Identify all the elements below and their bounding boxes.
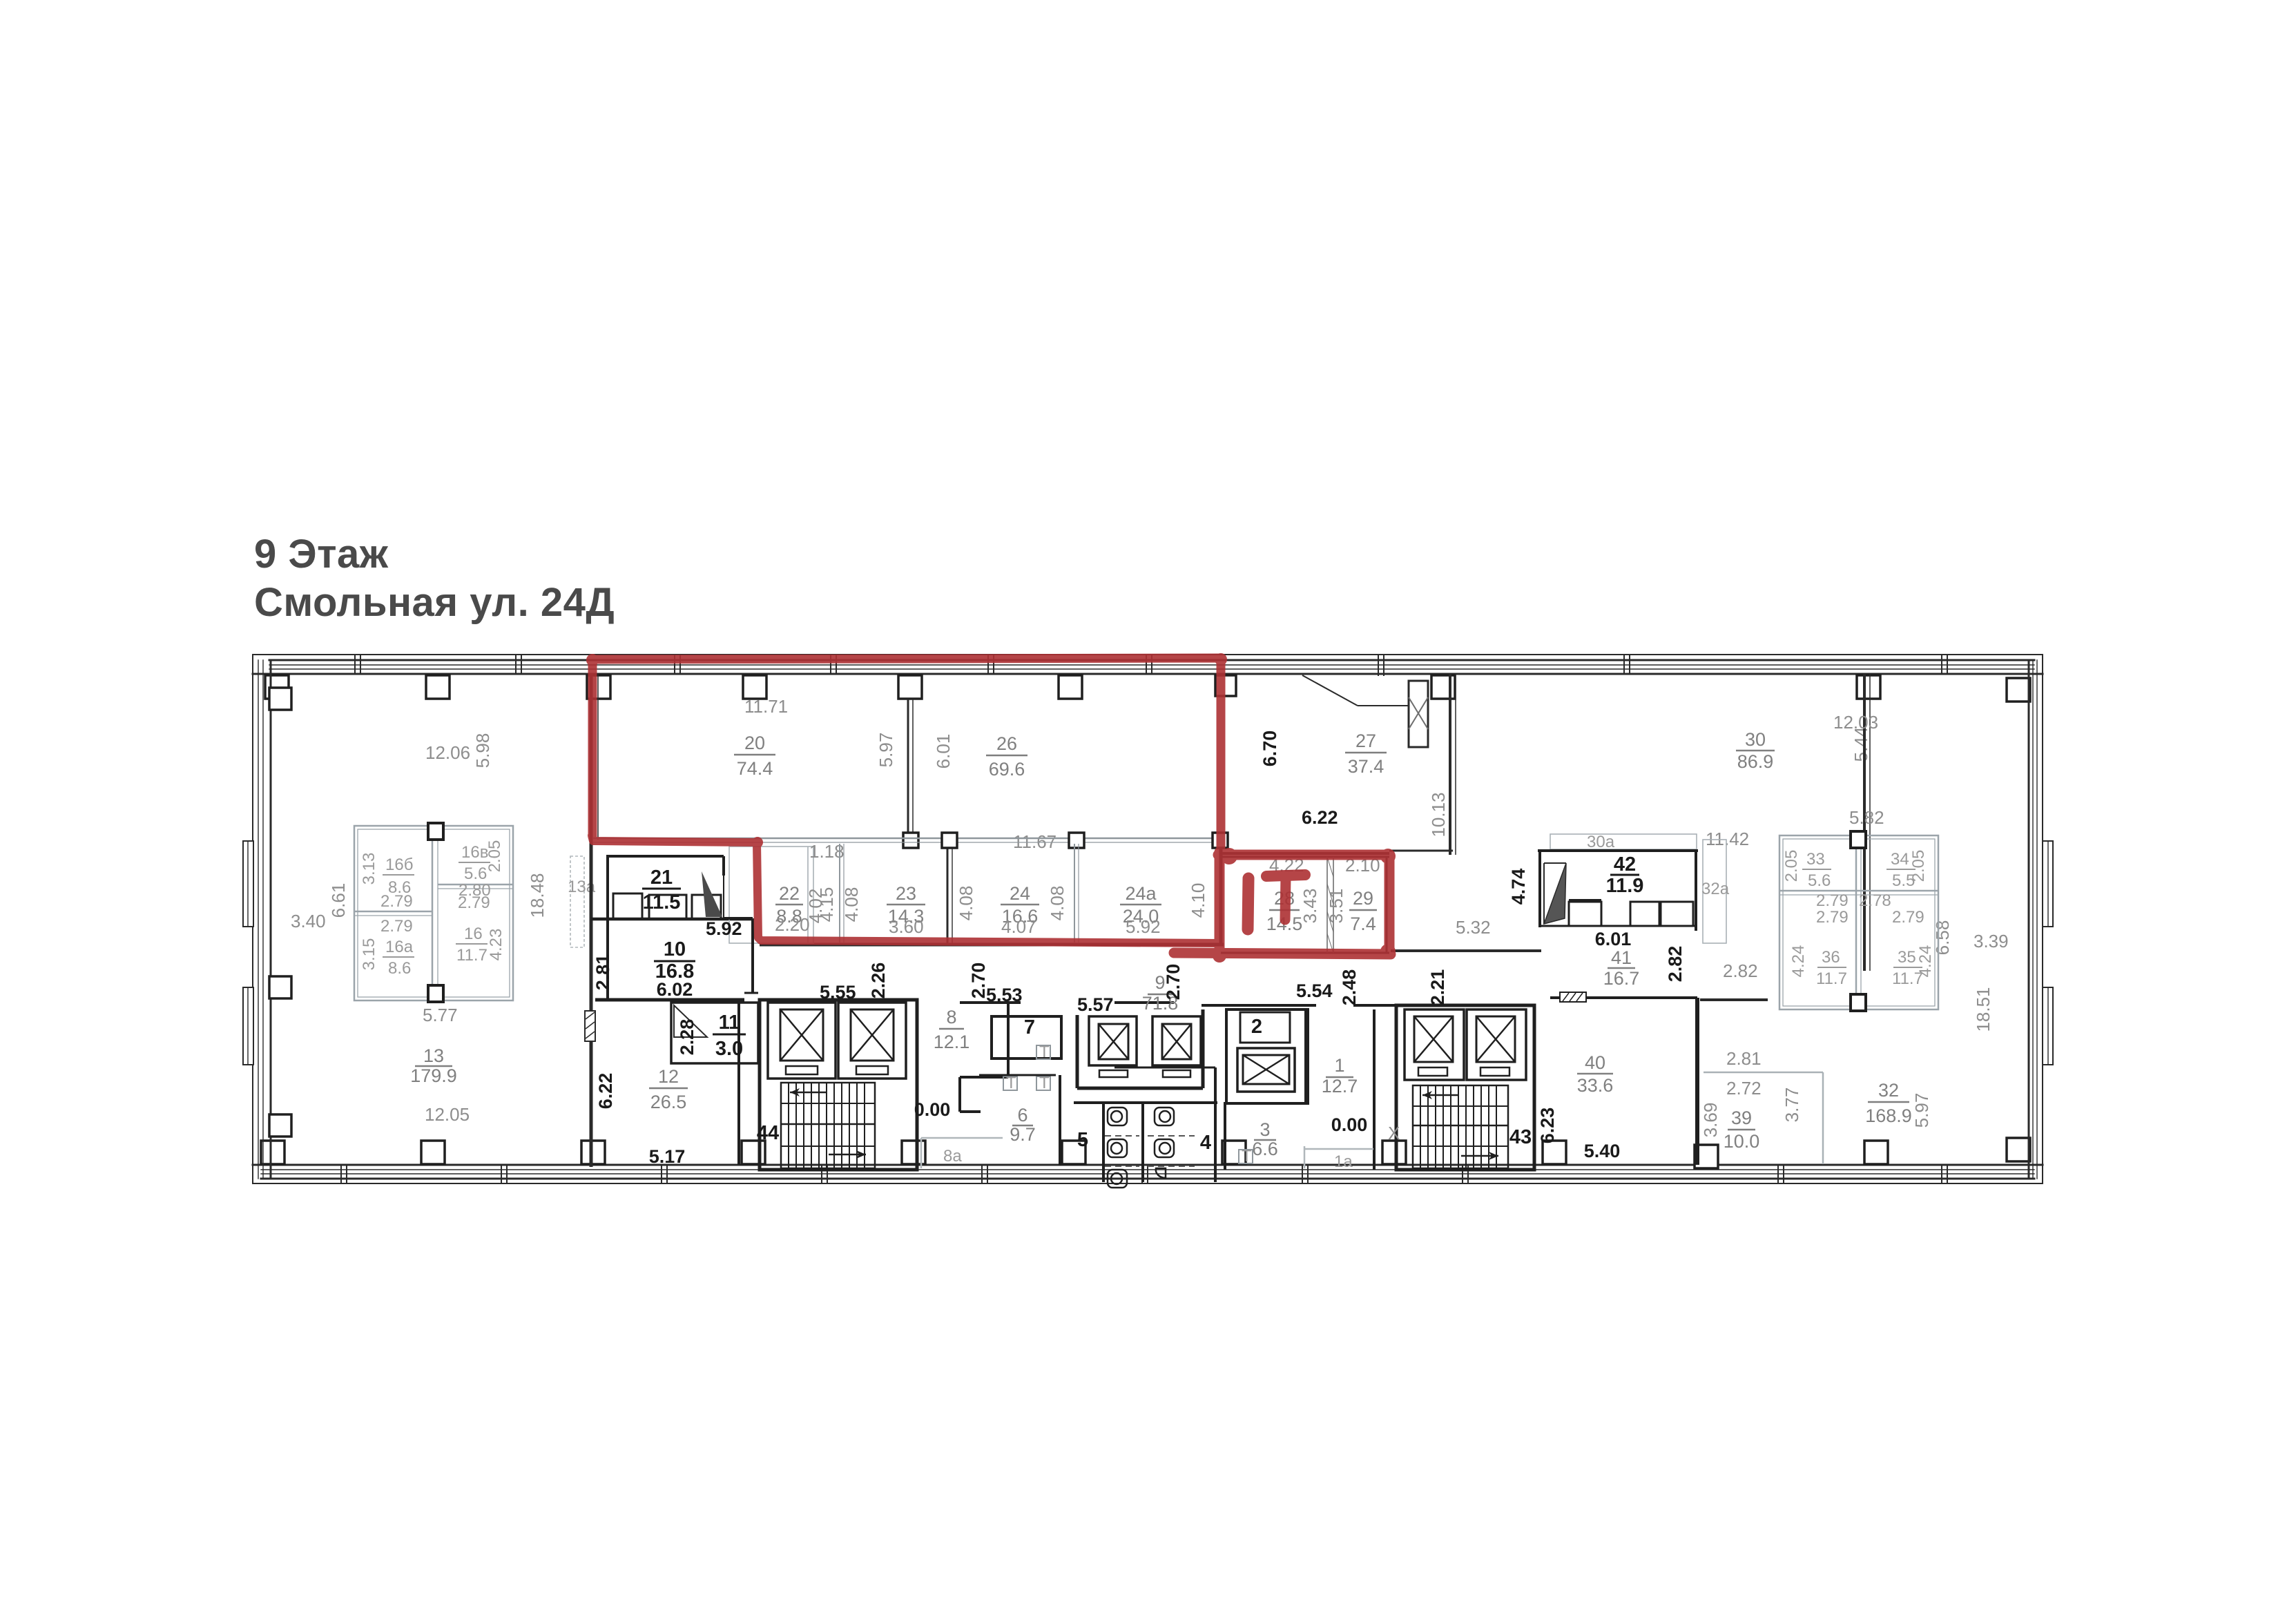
svg-text:12.03: 12.03 [1833, 712, 1878, 733]
svg-text:2.20: 2.20 [775, 914, 810, 935]
svg-text:4.74: 4.74 [1508, 869, 1529, 905]
svg-text:9.7: 9.7 [1010, 1124, 1036, 1145]
svg-text:30: 30 [1745, 729, 1766, 750]
svg-text:4.23: 4.23 [487, 929, 505, 961]
svg-text:4.08: 4.08 [956, 886, 976, 921]
svg-text:6.01: 6.01 [933, 734, 954, 769]
svg-text:7: 7 [1024, 1016, 1035, 1038]
svg-text:26: 26 [996, 733, 1017, 754]
svg-text:5: 5 [1077, 1129, 1088, 1151]
svg-text:6.01: 6.01 [1595, 929, 1632, 949]
svg-text:3.39: 3.39 [1974, 931, 2009, 951]
svg-text:Т: Т [1039, 1043, 1050, 1061]
svg-text:2.21: 2.21 [1427, 969, 1448, 1006]
svg-text:3.15: 3.15 [360, 938, 378, 971]
svg-text:5.57: 5.57 [1077, 994, 1114, 1015]
svg-text:4.07: 4.07 [1001, 916, 1036, 937]
svg-text:2.48: 2.48 [1339, 969, 1360, 1006]
svg-text:2.05: 2.05 [1909, 850, 1928, 882]
svg-text:2.79: 2.79 [380, 917, 413, 936]
svg-text:5.82: 5.82 [1849, 807, 1884, 828]
svg-text:12.7: 12.7 [1322, 1076, 1358, 1096]
svg-text:3.43: 3.43 [1300, 889, 1320, 924]
svg-text:6.22: 6.22 [1302, 807, 1338, 828]
svg-text:4.15: 4.15 [816, 887, 837, 922]
svg-text:5.77: 5.77 [423, 1005, 458, 1025]
svg-text:Т: Т [1006, 1074, 1016, 1092]
svg-text:2.72: 2.72 [1726, 1078, 1762, 1099]
svg-text:16.7: 16.7 [1603, 968, 1640, 989]
svg-text:16а: 16а [385, 938, 414, 956]
svg-text:2.05: 2.05 [485, 840, 504, 873]
svg-text:3.60: 3.60 [889, 916, 924, 937]
svg-text:1а: 1а [1334, 1152, 1353, 1171]
svg-text:2.05: 2.05 [1782, 850, 1801, 882]
svg-text:16в: 16в [461, 843, 488, 862]
svg-text:5.17: 5.17 [649, 1146, 686, 1167]
svg-text:6.61: 6.61 [328, 883, 349, 918]
svg-text:4.24: 4.24 [1789, 945, 1808, 978]
svg-text:10: 10 [664, 938, 686, 960]
svg-text:32а: 32а [1701, 880, 1730, 898]
svg-text:5.97: 5.97 [876, 733, 896, 768]
svg-text:Смольная ул. 24Д: Смольная ул. 24Д [254, 580, 615, 625]
svg-text:6: 6 [1017, 1105, 1027, 1125]
svg-text:12.1: 12.1 [934, 1032, 970, 1052]
svg-text:2.79: 2.79 [1892, 908, 1924, 927]
svg-text:179.9: 179.9 [410, 1065, 457, 1086]
svg-text:3.77: 3.77 [1782, 1087, 1802, 1123]
svg-text:5.55: 5.55 [820, 982, 856, 1003]
svg-text:8.6: 8.6 [388, 959, 411, 978]
svg-text:12.05: 12.05 [425, 1104, 470, 1125]
svg-text:2.82: 2.82 [1723, 960, 1758, 981]
svg-text:3.13: 3.13 [360, 853, 378, 885]
svg-text:74.4: 74.4 [737, 758, 773, 779]
svg-text:2: 2 [1251, 1016, 1262, 1038]
svg-text:10.13: 10.13 [1428, 792, 1449, 837]
svg-text:41: 41 [1611, 947, 1632, 968]
svg-text:16: 16 [464, 925, 483, 943]
svg-text:4.10: 4.10 [1188, 883, 1208, 918]
svg-text:2.82: 2.82 [1665, 946, 1686, 983]
svg-text:37.4: 37.4 [1348, 756, 1384, 777]
svg-text:23: 23 [896, 883, 916, 904]
svg-text:2.28: 2.28 [677, 1019, 697, 1056]
svg-text:21: 21 [650, 867, 673, 889]
svg-text:69.6: 69.6 [989, 759, 1025, 780]
svg-text:2.79: 2.79 [1816, 891, 1849, 910]
svg-text:29: 29 [1353, 888, 1373, 909]
svg-text:6.02: 6.02 [657, 979, 693, 1000]
svg-text:8а: 8а [943, 1147, 962, 1166]
svg-text:11.7: 11.7 [456, 946, 488, 965]
svg-text:3.51: 3.51 [1326, 889, 1347, 924]
svg-text:5.54: 5.54 [1296, 980, 1333, 1001]
svg-text:2.70: 2.70 [968, 963, 989, 999]
svg-text:26.5: 26.5 [650, 1092, 687, 1112]
svg-text:5.6: 5.6 [464, 864, 487, 883]
svg-text:5.6: 5.6 [1808, 871, 1831, 890]
svg-text:35: 35 [1898, 948, 1916, 967]
svg-text:3.0: 3.0 [715, 1038, 743, 1060]
svg-text:86.9: 86.9 [1737, 751, 1774, 772]
svg-text:36: 36 [1822, 948, 1840, 967]
svg-text:20: 20 [744, 733, 765, 753]
svg-text:33.6: 33.6 [1577, 1075, 1614, 1096]
svg-text:11.67: 11.67 [1013, 831, 1056, 852]
svg-text:16б: 16б [385, 855, 413, 874]
svg-text:11.71: 11.71 [744, 696, 788, 717]
svg-text:4: 4 [1200, 1132, 1211, 1154]
svg-text:5.92: 5.92 [1126, 916, 1161, 937]
svg-text:5.98: 5.98 [472, 733, 493, 768]
svg-text:3: 3 [1260, 1119, 1270, 1140]
svg-text:5.32: 5.32 [1456, 917, 1491, 938]
svg-text:2.79: 2.79 [1816, 908, 1849, 927]
svg-text:2.26: 2.26 [868, 963, 889, 999]
svg-text:5.53: 5.53 [986, 985, 1023, 1005]
svg-text:4.08: 4.08 [841, 887, 862, 922]
svg-text:2.79: 2.79 [380, 892, 413, 911]
svg-text:32: 32 [1878, 1080, 1899, 1101]
svg-text:11.42: 11.42 [1706, 829, 1749, 849]
svg-text:24а: 24а [1125, 883, 1157, 904]
svg-text:12.06: 12.06 [425, 742, 470, 763]
svg-text:5.40: 5.40 [1584, 1141, 1621, 1161]
svg-text:24: 24 [1010, 883, 1030, 904]
svg-text:34: 34 [1891, 850, 1909, 869]
svg-text:Т: Т [1242, 1147, 1252, 1166]
svg-text:13: 13 [423, 1045, 444, 1066]
svg-text:0.00: 0.00 [1331, 1114, 1368, 1135]
svg-text:2.70: 2.70 [1163, 964, 1184, 1000]
svg-text:6.22: 6.22 [595, 1073, 616, 1110]
svg-text:39: 39 [1731, 1108, 1752, 1128]
svg-text:30а: 30а [1587, 833, 1615, 851]
svg-text:7.4: 7.4 [1350, 913, 1376, 934]
svg-text:3.69: 3.69 [1700, 1103, 1721, 1138]
svg-text:168.9: 168.9 [1865, 1105, 1912, 1126]
svg-text:22: 22 [779, 883, 800, 904]
svg-text:27: 27 [1355, 731, 1376, 751]
svg-text:6.23: 6.23 [1537, 1108, 1558, 1144]
svg-text:8: 8 [946, 1007, 956, 1027]
svg-text:2.81: 2.81 [1726, 1048, 1762, 1069]
svg-text:1: 1 [1334, 1055, 1344, 1076]
svg-text:12: 12 [658, 1066, 679, 1087]
svg-text:33: 33 [1806, 850, 1825, 869]
svg-text:3.40: 3.40 [291, 911, 326, 931]
svg-text:Т: Т [1039, 1074, 1050, 1092]
svg-text:43: 43 [1509, 1126, 1532, 1148]
svg-text:11.9: 11.9 [1606, 875, 1644, 897]
svg-text:44: 44 [757, 1122, 779, 1144]
svg-text:11: 11 [719, 1012, 740, 1034]
svg-text:4.24: 4.24 [1916, 945, 1935, 978]
svg-text:2.78: 2.78 [1859, 891, 1891, 910]
svg-text:2.79: 2.79 [458, 893, 490, 912]
svg-text:9 Этаж: 9 Этаж [254, 532, 389, 577]
svg-text:11.7: 11.7 [1816, 969, 1847, 988]
svg-text:4.08: 4.08 [1047, 886, 1068, 921]
svg-text:5.97: 5.97 [1911, 1093, 1932, 1128]
svg-text:40: 40 [1585, 1052, 1605, 1073]
svg-text:2.81: 2.81 [592, 954, 613, 991]
svg-text:10.0: 10.0 [1724, 1131, 1760, 1152]
svg-text:5.92: 5.92 [706, 918, 742, 939]
svg-text:6.70: 6.70 [1260, 731, 1280, 767]
svg-text:6.6: 6.6 [1252, 1139, 1278, 1159]
svg-text:18.51: 18.51 [1973, 987, 1994, 1032]
svg-text:18.48: 18.48 [527, 873, 548, 918]
svg-text:Х: Х [1388, 1123, 1400, 1143]
svg-text:42: 42 [1614, 853, 1636, 876]
svg-text:0.00: 0.00 [914, 1099, 951, 1120]
